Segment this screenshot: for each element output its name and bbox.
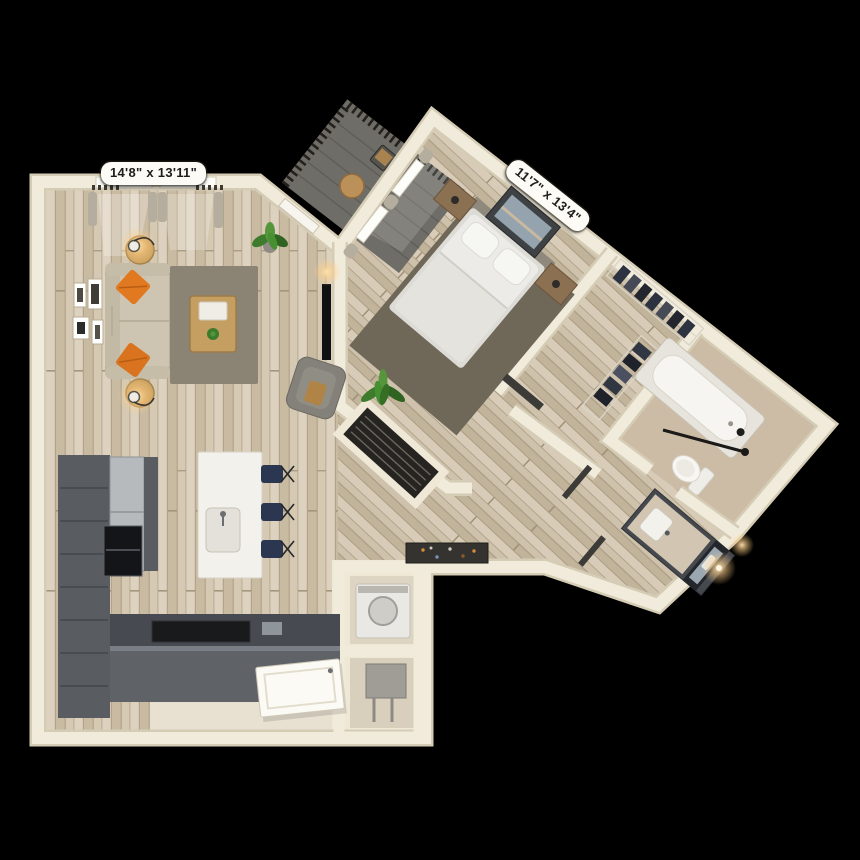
corner-lamp-glow — [313, 258, 341, 286]
floorplan-svg — [0, 0, 860, 860]
floorplan-render: 14'8" x 13'11" 11'7" x 13'4" — [0, 0, 860, 860]
dimension-label-living-room: 14'8" x 13'11" — [101, 162, 206, 185]
side-table-lamp-bottom — [118, 377, 156, 415]
sconce-bulb — [716, 565, 722, 571]
kitchen-island — [198, 452, 262, 578]
shower-head — [741, 448, 749, 456]
sofa — [105, 263, 170, 379]
window-light-pool-2 — [162, 194, 214, 250]
hall-doormat — [406, 543, 488, 563]
washer — [356, 584, 410, 638]
cooktop — [152, 621, 250, 642]
bistro-table — [340, 174, 364, 198]
counter-edge-highlight — [110, 646, 340, 651]
cabinet-side-panel — [144, 457, 158, 571]
tv — [322, 284, 331, 360]
side-table-lamp-top — [119, 227, 157, 265]
sconce-glow-2 — [730, 533, 754, 557]
counter-appliance — [262, 622, 282, 635]
entry-door — [256, 659, 347, 723]
coffee-table — [190, 296, 236, 352]
